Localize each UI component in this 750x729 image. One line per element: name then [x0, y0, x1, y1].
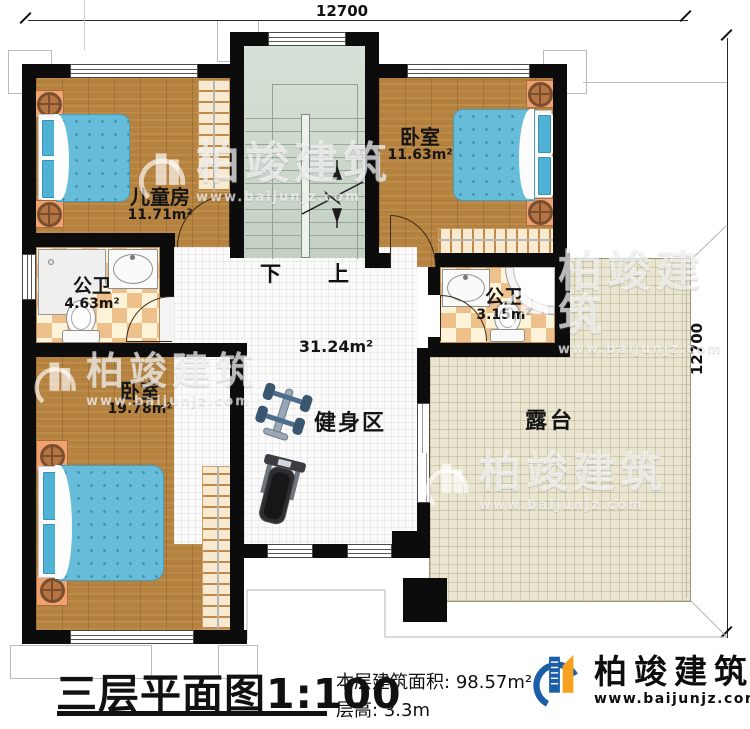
sink-faucet-icon [130, 255, 135, 260]
wardrobe [438, 228, 554, 255]
dimension-line-right [727, 38, 728, 638]
terrace-sliding-door [417, 403, 430, 503]
lamp-icon [40, 578, 65, 603]
wall-segment [428, 267, 440, 295]
wall-segment [22, 343, 247, 357]
dimension-top-label: 12700 [306, 2, 378, 20]
floor-height-label: 层高: [336, 700, 378, 721]
toilet-tank [62, 330, 100, 343]
wall-segment [22, 630, 70, 644]
wall-segment [392, 531, 417, 558]
wall-segment [233, 544, 267, 558]
wall-segment [428, 343, 570, 357]
wall-segment [379, 64, 407, 78]
sink-faucet-icon [463, 275, 468, 280]
stair-rail [301, 114, 310, 258]
room-label-terrace: 露台 [508, 410, 592, 435]
floor-plan-canvas: 12700 12700 [0, 0, 750, 729]
shower-drain-icon [48, 259, 54, 265]
floor-area-row: 本层建筑面积: 98.57m² [336, 669, 532, 697]
terrace-edge [686, 262, 687, 598]
room-label-fitness: 健身区 [292, 412, 408, 437]
wardrobe [202, 466, 232, 630]
lamp-icon [528, 200, 553, 225]
wall-segment [417, 503, 430, 558]
window [268, 32, 346, 46]
title-underline [57, 711, 327, 716]
eave-line [583, 82, 727, 83]
pillow [536, 113, 553, 155]
wall-segment [553, 64, 567, 267]
stair-down-label: 下 [260, 258, 281, 288]
wall-segment [160, 233, 174, 297]
nightstand [526, 80, 554, 108]
window [70, 630, 194, 644]
brand-url: www.baijunjz.com [594, 691, 750, 707]
wall-segment [555, 253, 570, 357]
lamp-icon [528, 82, 553, 107]
terrace-edge [430, 601, 691, 602]
lamp-icon [37, 202, 62, 227]
nightstand [526, 198, 554, 226]
lamp-icon [37, 92, 62, 117]
wall-column [403, 578, 447, 622]
room-label-bath-right: 公卫 3.15m² [468, 287, 540, 324]
pillow [536, 155, 553, 197]
floor-stats: 本层建筑面积: 98.57m² 层高: 3.3m [336, 669, 532, 725]
floor-height-value: 3.3m [384, 700, 430, 721]
wall-segment [435, 253, 568, 267]
room-label-bath-left: 公卫 4.63m² [56, 276, 128, 313]
brand-logo-icon [532, 648, 586, 714]
hall-area-label: 31.24m² [294, 338, 378, 356]
nightstand [34, 200, 64, 228]
floor-area-value: 98.57m² [456, 672, 532, 693]
wall-segment [22, 64, 36, 254]
wall-segment [230, 32, 244, 258]
terrace-edge [568, 258, 691, 259]
wall-segment [230, 32, 268, 46]
window [347, 544, 392, 558]
dimension-line-top [28, 20, 688, 21]
dimension-tick [19, 12, 31, 24]
wall-segment [417, 348, 430, 403]
room-label-children: 儿童房 11.71m² [116, 186, 204, 224]
wall-segment [22, 233, 175, 247]
toilet-tank [490, 329, 525, 342]
window [22, 254, 36, 300]
wall-segment [22, 357, 36, 644]
room-label-bedroom-top: 卧室 11.63m² [376, 126, 464, 164]
brand-name: 柏竣建筑 [594, 655, 750, 688]
floor-height-row: 层高: 3.3m [336, 697, 532, 725]
brand-block: 柏竣建筑 www.baijunjz.com [532, 648, 750, 714]
wardrobe [198, 80, 230, 192]
room-label-bedroom-bottom: 卧室 19.78m² [94, 380, 186, 418]
window [70, 64, 198, 78]
window [407, 64, 530, 78]
treadmill [235, 450, 317, 532]
window [267, 544, 313, 558]
bed-mattress [58, 465, 164, 581]
floor-area-label: 本层建筑面积: [336, 672, 450, 693]
wall-segment [313, 544, 347, 558]
terrace-edge [690, 258, 691, 602]
stair-up-label: 上 [328, 258, 349, 288]
wall-segment [230, 357, 244, 644]
dimension-right-label: 12700 [688, 314, 706, 384]
eave-line [84, 0, 85, 50]
